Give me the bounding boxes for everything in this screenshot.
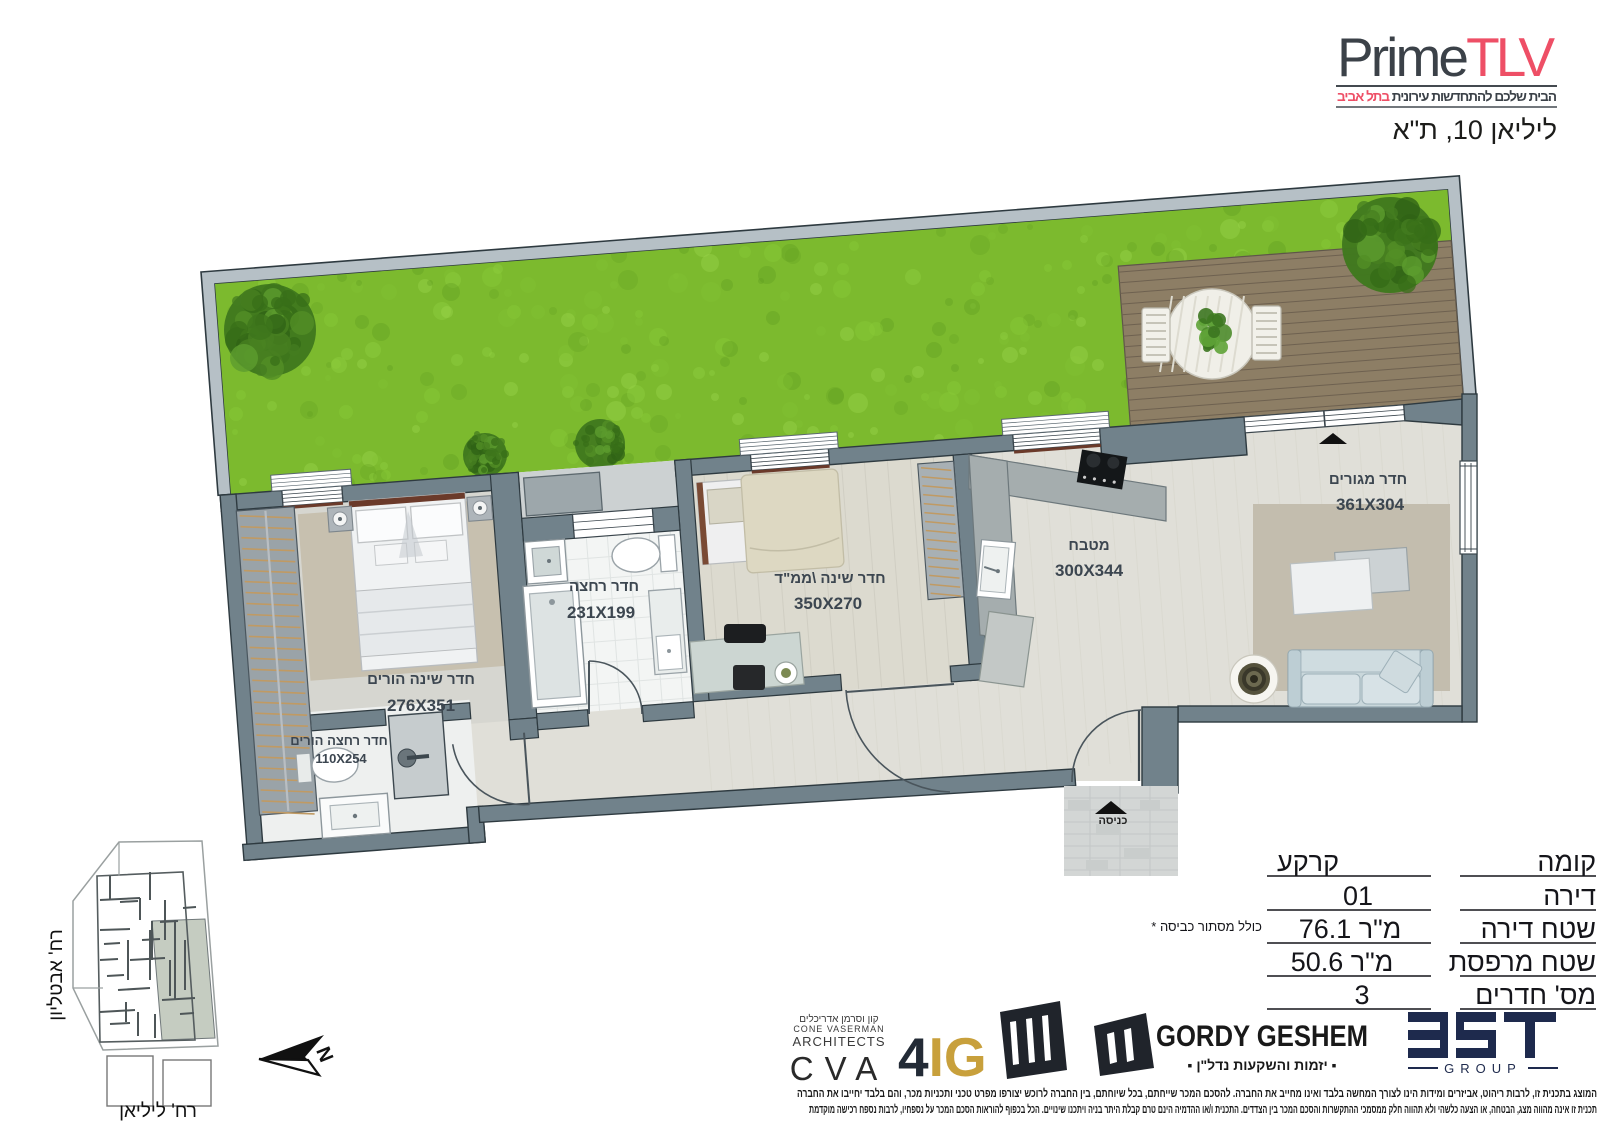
svg-text:PrimeTLV: PrimeTLV xyxy=(1337,26,1555,88)
svg-text:50.6 מ"ר: 50.6 מ"ר xyxy=(1291,947,1394,977)
svg-text:110X254: 110X254 xyxy=(315,751,367,766)
svg-text:76.1 מ"ר: 76.1 מ"ר xyxy=(1299,914,1402,944)
svg-text:חדר רחצה הורים: חדר רחצה הורים xyxy=(290,733,388,748)
svg-text:תכנית זו אינה מהווה מצג, הבטחה: תכנית זו אינה מהווה מצג, הבטחה, או הצעה … xyxy=(809,1103,1597,1116)
svg-text:חדר מגורים: חדר מגורים xyxy=(1329,471,1407,488)
svg-text:▪ יזמות והשקעות נדל"ן ▪: ▪ יזמות והשקעות נדל"ן ▪ xyxy=(1187,1057,1336,1073)
svg-text:GROUP: GROUP xyxy=(1444,1061,1522,1076)
svg-text:CVA: CVA xyxy=(790,1050,888,1087)
svg-text:דירה: דירה xyxy=(1543,881,1596,911)
svg-text:* כולל מסתור כביסה: * כולל מסתור כביסה xyxy=(1151,919,1262,934)
svg-text:231X199: 231X199 xyxy=(567,603,635,622)
svg-text:המוצג בתכנית זו, לרבות ריהוט,: המוצג בתכנית זו, לרבות ריהוט, אביזרים ומ… xyxy=(797,1087,1597,1100)
svg-text:01: 01 xyxy=(1343,881,1373,911)
svg-text:כניסה: כניסה xyxy=(1099,815,1128,827)
svg-text:ARCHITECTS: ARCHITECTS xyxy=(792,1034,885,1049)
svg-text:361X304: 361X304 xyxy=(1336,495,1405,514)
svg-text:3: 3 xyxy=(1354,980,1369,1010)
svg-text:קרקע: קרקע xyxy=(1277,847,1339,877)
svg-text:הבית שלכם להתחדשות עירונית בתל: הבית שלכם להתחדשות עירונית בתל אביב xyxy=(1337,89,1557,104)
svg-text:קומה: קומה xyxy=(1537,847,1596,877)
svg-text:רח' אבטליון: רח' אבטליון xyxy=(46,929,67,1021)
svg-text:276X351: 276X351 xyxy=(387,696,455,715)
svg-text:300X344: 300X344 xyxy=(1055,561,1124,580)
svg-text:חדר שינה הורים: חדר שינה הורים xyxy=(367,671,475,688)
svg-text:רח' ליליאן: רח' ליליאן xyxy=(119,1101,197,1122)
svg-text:CONE VASERMAN: CONE VASERMAN xyxy=(793,1024,884,1034)
svg-text:שטח דירה: שטח דירה xyxy=(1481,914,1596,944)
svg-text:חדר שינה \ממ"ד: חדר שינה \ממ"ד xyxy=(774,570,885,587)
svg-text:מטבח: מטבח xyxy=(1068,537,1109,554)
svg-text:שטח מרפסת: שטח מרפסת xyxy=(1449,947,1596,977)
svg-text:N: N xyxy=(311,1044,337,1066)
svg-text:מס' חדרים: מס' חדרים xyxy=(1475,980,1596,1010)
svg-text:350X270: 350X270 xyxy=(794,594,862,613)
svg-text:חדר רחצה: חדר רחצה xyxy=(569,578,639,595)
svg-text:ליליאן 10, ת"א: ליליאן 10, ת"א xyxy=(1393,115,1557,145)
svg-text:GORDY GESHEM: GORDY GESHEM xyxy=(1156,1020,1368,1053)
svg-text:4IG: 4IG xyxy=(898,1026,987,1088)
